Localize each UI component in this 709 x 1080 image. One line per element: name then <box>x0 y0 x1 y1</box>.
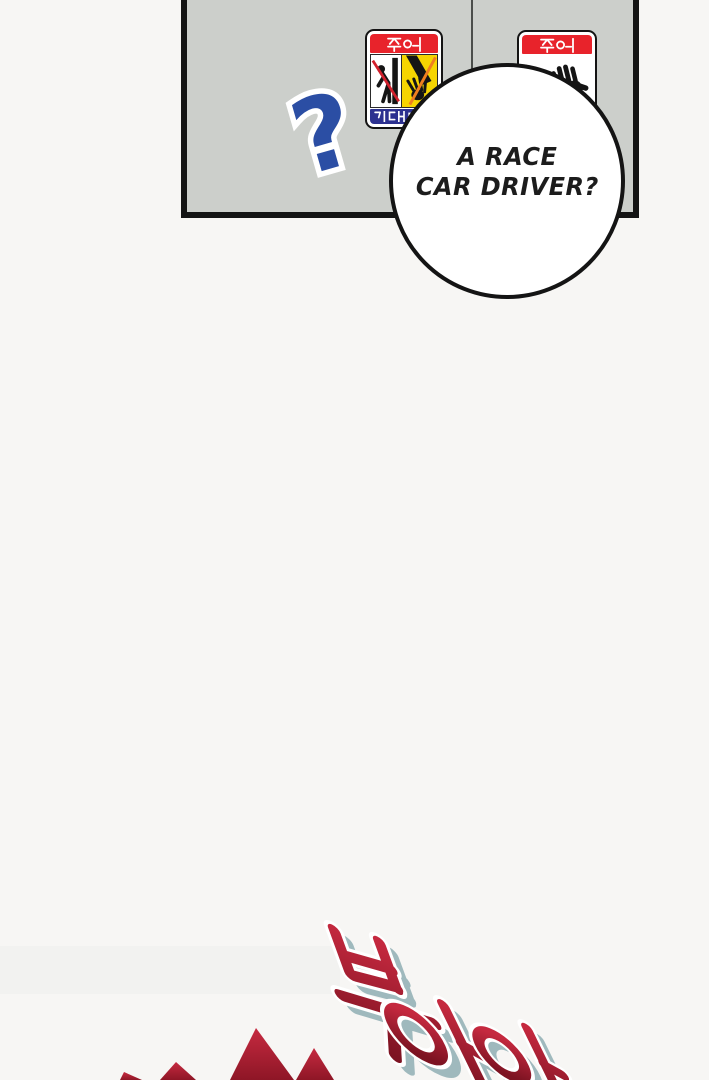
background-band <box>0 946 340 994</box>
speech-line-2: CAR DRIVER? <box>415 172 598 203</box>
speech-bubble: A RACE CAR DRIVER? <box>389 63 625 299</box>
hangul-caution-text-icon <box>535 37 579 53</box>
person-leaning-icon <box>371 55 401 107</box>
lean-prohibited-cell <box>370 54 401 108</box>
speed-spikes <box>118 1022 353 1080</box>
webtoon-page: ? ? A RACE CAR DRIVER? <box>0 0 709 1080</box>
hangul-caution-text-icon <box>382 36 426 52</box>
caution-header <box>370 34 438 53</box>
speech-bubble-text: A RACE CAR DRIVER? <box>415 142 598 203</box>
caution-header <box>522 35 592 54</box>
speech-line-1: A RACE <box>415 142 598 173</box>
